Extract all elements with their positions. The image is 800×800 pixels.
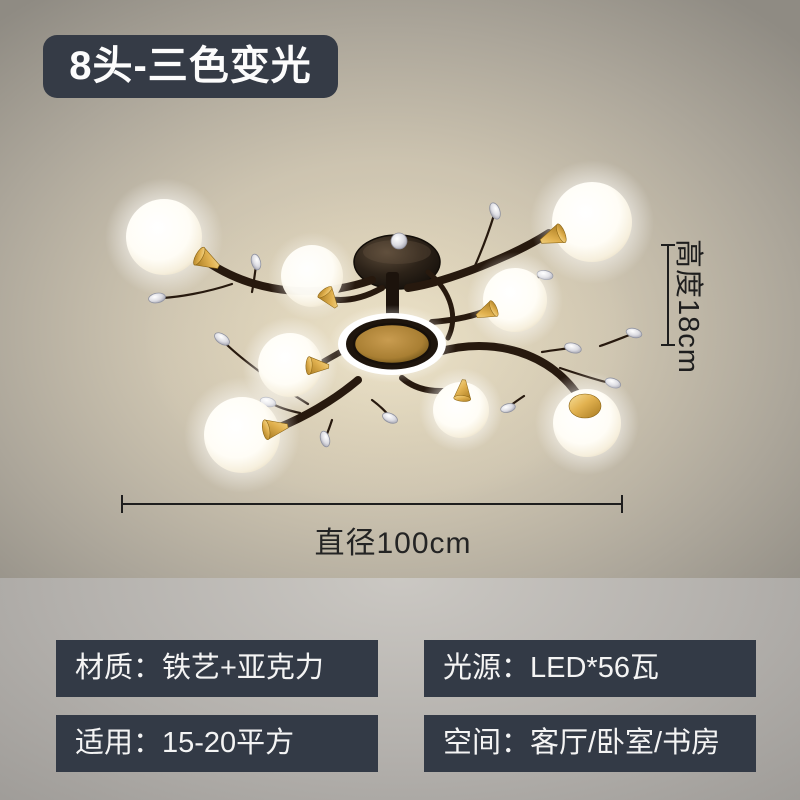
lamp-globe: [184, 377, 300, 493]
lamp-globe: [530, 160, 654, 284]
diameter-dimension-line: [122, 503, 622, 505]
product-photo: 8头-三色变光 高度18cm 直径100cm: [0, 0, 800, 578]
spec-section: 材质：铁艺+亚克力 光源：LED*56瓦 适用：15-20平方 空间：客厅/卧室…: [0, 578, 800, 800]
spec-rooms: 空间：客厅/卧室/书房: [424, 715, 756, 772]
spec-light-source: 光源：LED*56瓦: [424, 640, 756, 697]
lamp-globe: [105, 178, 223, 296]
lamp-globe: [467, 252, 563, 348]
canopy-crystal: [391, 233, 407, 249]
lamp-globe: [535, 371, 639, 475]
diameter-dimension-label: 直径100cm: [238, 518, 548, 562]
lamp-globe: [419, 368, 503, 452]
diameter-dimension-cap-right: [621, 495, 623, 513]
height-dimension-label: 高度18cm: [670, 239, 712, 374]
height-dimension-line: [667, 245, 669, 345]
spec-grid: 材质：铁艺+亚克力 光源：LED*56瓦 适用：15-20平方 空间：客厅/卧室…: [56, 640, 756, 772]
variant-badge: 8头-三色变光: [43, 35, 338, 98]
lamp-globe: [268, 232, 356, 320]
led-ring: [328, 305, 456, 383]
diameter-dimension-cap-left: [121, 495, 123, 513]
spec-coverage: 适用：15-20平方: [56, 715, 378, 772]
spec-material: 材质：铁艺+亚克力: [56, 640, 378, 697]
product-card: 8头-三色变光 高度18cm 直径100cm 材质：铁艺+亚克力 光源：LED*…: [0, 0, 800, 800]
